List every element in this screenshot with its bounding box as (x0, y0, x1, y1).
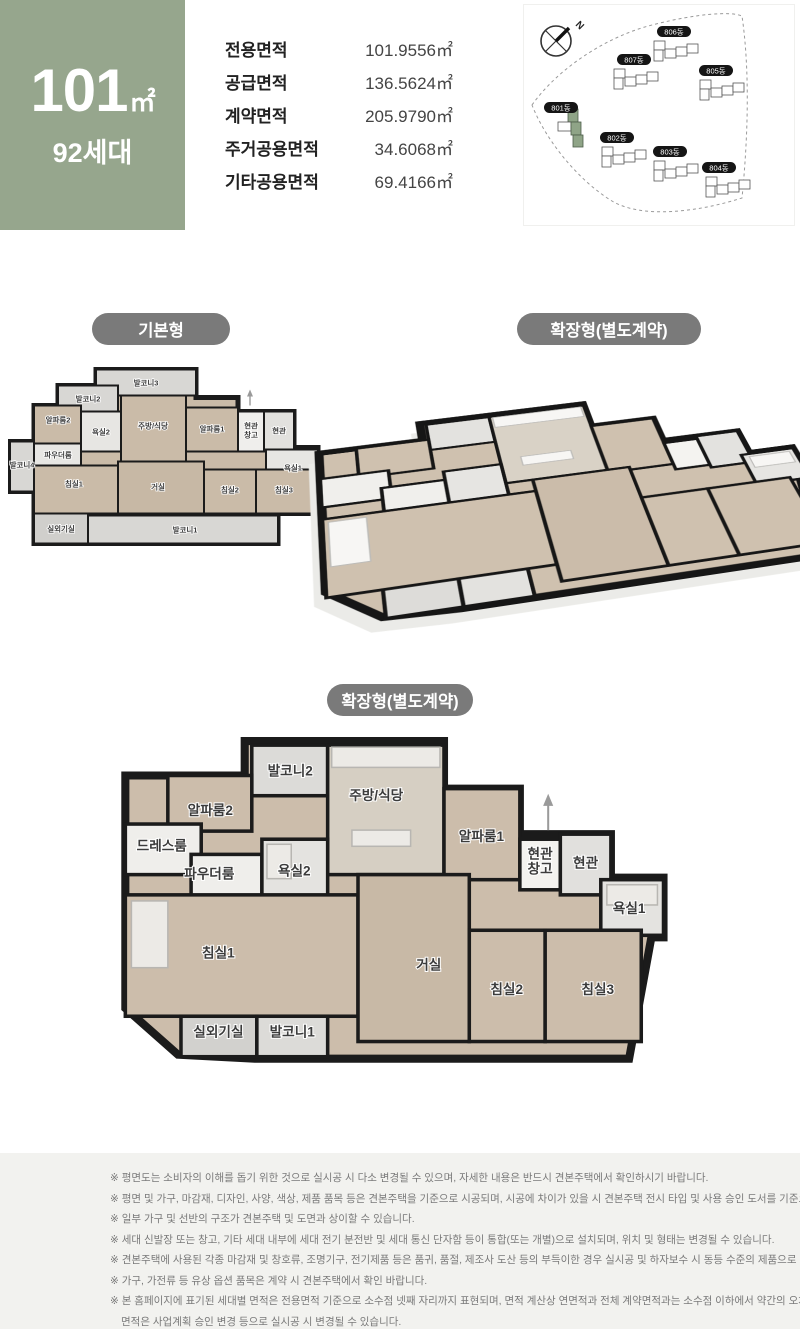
room-label-bed1: 침실1 (202, 946, 235, 961)
area-table: 전용면적 101.9556㎡ 공급면적 136.5624㎡ 계약면적 205.9… (225, 32, 453, 197)
room-label-living: 거실 (151, 482, 165, 492)
room-label-powder: 파우더룸 (184, 867, 235, 882)
disclaimer-line: ※ 세대 신발장 또는 창고, 기타 세대 내부에 세대 전기 분전반 및 세대… (110, 1230, 750, 1251)
building-label: 805동 (706, 67, 726, 76)
extended-floor-plan-3d (368, 350, 792, 655)
room-label-entry-storage-1: 현관 (528, 845, 554, 861)
extended-type-pill-bottom-label: 확장형(별도계약) (341, 688, 458, 712)
area-row-label: 주거공용면적 (225, 135, 353, 160)
room-label-bed3: 침실3 (581, 982, 614, 997)
basic-type-pill-label: 기본형 (138, 317, 184, 341)
basic-floor-plan: 발코니3 발코니2 알파룸2 욕실2 주방/식당 알파룸1 현관 창고 현관 파… (8, 363, 338, 558)
extended-type-pill-bottom: 확장형(별도계약) (327, 684, 473, 716)
room-label-living: 거실 (416, 958, 441, 973)
disclaimer-line: ※ 평면도는 소비자의 이해를 돕기 위한 것으로 실시공 시 다소 변경될 수… (110, 1168, 750, 1189)
building-label: 804동 (709, 164, 729, 173)
area-row-label: 전용면적 (225, 36, 353, 61)
room-label-bed2: 침실2 (490, 982, 523, 997)
room-label-balcony1: 발코니1 (270, 1023, 316, 1039)
room-label-bath2: 욕실2 (278, 864, 311, 879)
building-801: 801동 (544, 102, 583, 147)
room-label-bed3: 침실3 (275, 485, 293, 495)
area-row-value: 34.6068㎡ (353, 135, 453, 160)
site-map: N 801동 802동 803동 (523, 4, 795, 226)
disclaimer-line: ※ 본 홈페이지에 표기된 세대별 면적은 전용면적 기준으로 소수점 넷째 자… (110, 1291, 750, 1312)
building-806: 806동 (654, 26, 698, 61)
disclaimer-line: ※ 일부 가구 및 선반의 구조가 견본주택 및 도면과 상이할 수 있습니다. (110, 1209, 750, 1230)
room-label-bed2: 침실2 (221, 485, 239, 495)
room-label-balcony2: 발코니2 (76, 394, 101, 404)
room-label-balcony2: 발코니2 (268, 762, 314, 778)
room-label-alpha1: 알파룸1 (459, 829, 505, 844)
building-label: 806동 (664, 28, 684, 37)
building-805: 805동 (699, 65, 744, 100)
unit-type-box: 101㎡ 92세대 (0, 0, 185, 230)
room-label-entry: 현관 (272, 426, 286, 436)
room-label-entry-storage-1: 현관 (244, 421, 258, 431)
table-row: 주거공용면적 34.6068㎡ (225, 131, 453, 164)
building-803: 803동 (653, 146, 698, 181)
room-label-bath1: 욕실1 (284, 463, 302, 473)
disclaimer-text: ※ 평면도는 소비자의 이해를 돕기 위한 것으로 실시공 시 다소 변경될 수… (110, 1168, 750, 1332)
room-label-ac: 실외기실 (47, 524, 75, 534)
room-label-bath1: 욕실1 (613, 901, 646, 916)
building-label: 807동 (624, 56, 644, 65)
building-label: 803동 (660, 148, 680, 157)
basic-type-pill: 기본형 (92, 313, 230, 345)
extended-type-pill-top-label: 확장형(별도계약) (550, 317, 667, 341)
iso-plan-tilt (300, 367, 800, 665)
area-row-value: 205.9790㎡ (353, 102, 453, 127)
building-802: 802동 (600, 132, 646, 167)
building-label: 801동 (551, 104, 571, 113)
unit-size-number: 101 (30, 61, 127, 121)
room-label-bed1: 침실1 (65, 479, 83, 489)
unit-size-unit: ㎡ (130, 89, 155, 121)
room-label-dress: 드레스룸 (137, 838, 188, 853)
room-label-powder: 파우더룸 (44, 450, 72, 460)
large-plan-north-arrow (543, 794, 553, 830)
area-row-label: 공급면적 (225, 69, 353, 94)
area-row-value: 101.9556㎡ (353, 36, 453, 61)
room-label-entry-storage-2: 창고 (528, 861, 554, 877)
area-row-value: 136.5624㎡ (353, 69, 453, 94)
disclaimer-line: ※ 가구, 가전류 등 유상 옵션 품목은 계약 시 견본주택에서 확인 바랍니… (110, 1271, 750, 1292)
disclaimer-line: ※ 견본주택에 사용된 각종 마감재 및 창호류, 조명기구, 전기제품 등은 … (110, 1250, 750, 1271)
room-label-bath2: 욕실2 (92, 427, 110, 437)
iso-plan-body (318, 383, 800, 629)
unit-households: 92세대 (53, 131, 133, 170)
table-row: 기타공용면적 69.4166㎡ (225, 164, 453, 197)
north-label: N (573, 19, 586, 32)
area-row-label: 기타공용면적 (225, 168, 353, 193)
room-label-entry-storage-2: 창고 (244, 430, 258, 440)
room-label-kitchen: 주방/식당 (138, 421, 168, 431)
table-row: 계약면적 205.9790㎡ (225, 98, 453, 131)
area-row-label: 계약면적 (225, 102, 353, 127)
disclaimer-line: ※ 평면 및 가구, 마감재, 디자인, 사양, 색상, 제품 품목 등은 견본… (110, 1189, 750, 1210)
room-label-entry: 현관 (573, 855, 599, 871)
table-row: 전용면적 101.9556㎡ (225, 32, 453, 65)
extended-floor-plan-2d: 발코니2 주방/식당 알파룸2 드레스룸 파우더룸 욕실2 알파룸1 현관 창고… (105, 733, 697, 1078)
unit-size: 101㎡ (30, 61, 154, 121)
building-label: 802동 (607, 134, 627, 143)
room-label-alpha2: 알파룸2 (188, 803, 234, 818)
room-label-kitchen: 주방/식당 (349, 787, 403, 803)
room-label-alpha1: 알파룸1 (200, 424, 225, 434)
basic-plan-north-arrow (247, 390, 253, 406)
extended-type-pill-top: 확장형(별도계약) (517, 313, 701, 345)
room-label-balcony3: 발코니3 (134, 378, 159, 388)
area-row-value: 69.4166㎡ (353, 168, 453, 193)
room-label-balcony4: 발코니4 (10, 460, 36, 470)
disclaimer-box: ※ 평면도는 소비자의 이해를 돕기 위한 것으로 실시공 시 다소 변경될 수… (0, 1153, 800, 1329)
building-807: 807동 (614, 54, 658, 89)
room-label-ac: 실외기실 (193, 1023, 243, 1039)
table-row: 공급면적 136.5624㎡ (225, 65, 453, 98)
room-label-alpha2: 알파룸2 (46, 415, 71, 425)
compass-icon: N (541, 19, 586, 56)
room-label-balcony1: 발코니1 (173, 525, 198, 535)
